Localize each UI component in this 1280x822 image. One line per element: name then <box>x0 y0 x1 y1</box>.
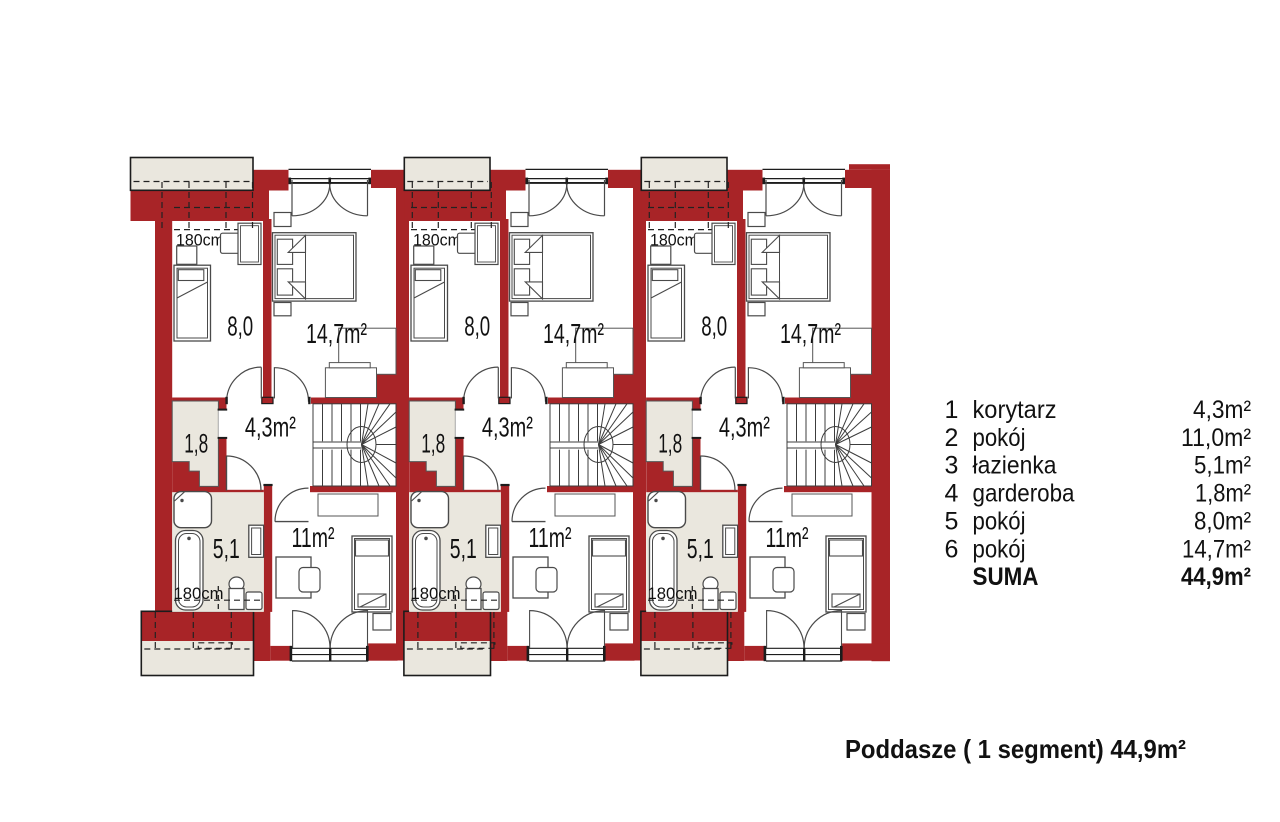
svg-text:1,8m²: 1,8m² <box>1195 480 1251 508</box>
svg-text:4,3m²: 4,3m² <box>719 412 770 443</box>
svg-text:pokój: pokój <box>973 535 1026 563</box>
svg-text:garderoba: garderoba <box>973 480 1075 508</box>
svg-text:łazienka: łazienka <box>973 452 1057 480</box>
svg-text:2: 2 <box>945 424 959 452</box>
svg-text:5,1: 5,1 <box>687 533 714 564</box>
svg-text:44,9m²: 44,9m² <box>1181 563 1251 591</box>
svg-text:8,0: 8,0 <box>227 311 253 342</box>
svg-text:11m²: 11m² <box>292 522 335 553</box>
svg-text:5,1: 5,1 <box>450 533 477 564</box>
svg-text:1,8: 1,8 <box>184 429 208 459</box>
svg-text:11,0m²: 11,0m² <box>1181 424 1251 452</box>
svg-text:5,1: 5,1 <box>213 533 240 564</box>
svg-text:11m²: 11m² <box>529 522 572 553</box>
svg-text:pokój: pokój <box>973 507 1026 535</box>
svg-text:14,7m²: 14,7m² <box>780 318 841 349</box>
svg-text:6: 6 <box>945 535 959 563</box>
svg-text:5: 5 <box>945 507 959 535</box>
svg-text:1,8: 1,8 <box>658 429 682 459</box>
svg-text:11m²: 11m² <box>766 522 809 553</box>
svg-text:1: 1 <box>945 396 959 424</box>
svg-text:4,3m²: 4,3m² <box>482 412 533 443</box>
svg-text:14,7m²: 14,7m² <box>306 318 367 349</box>
svg-text:4,3m²: 4,3m² <box>1193 396 1251 424</box>
svg-text:Poddasze ( 1 segment) 44,9m²: Poddasze ( 1 segment) 44,9m² <box>845 734 1186 764</box>
svg-text:5,1m²: 5,1m² <box>1194 452 1251 480</box>
svg-text:SUMA: SUMA <box>973 563 1039 591</box>
svg-text:4,3m²: 4,3m² <box>245 412 296 443</box>
svg-text:4: 4 <box>945 480 959 508</box>
svg-text:14,7m²: 14,7m² <box>1182 535 1251 563</box>
svg-text:8,0m²: 8,0m² <box>1194 507 1251 535</box>
svg-text:8,0: 8,0 <box>701 311 727 342</box>
svg-text:8,0: 8,0 <box>464 311 490 342</box>
svg-text:1,8: 1,8 <box>421 429 445 459</box>
svg-text:pokój: pokój <box>973 424 1026 452</box>
svg-text:14,7m²: 14,7m² <box>543 318 604 349</box>
svg-text:3: 3 <box>945 452 959 480</box>
svg-text:korytarz: korytarz <box>973 396 1057 424</box>
